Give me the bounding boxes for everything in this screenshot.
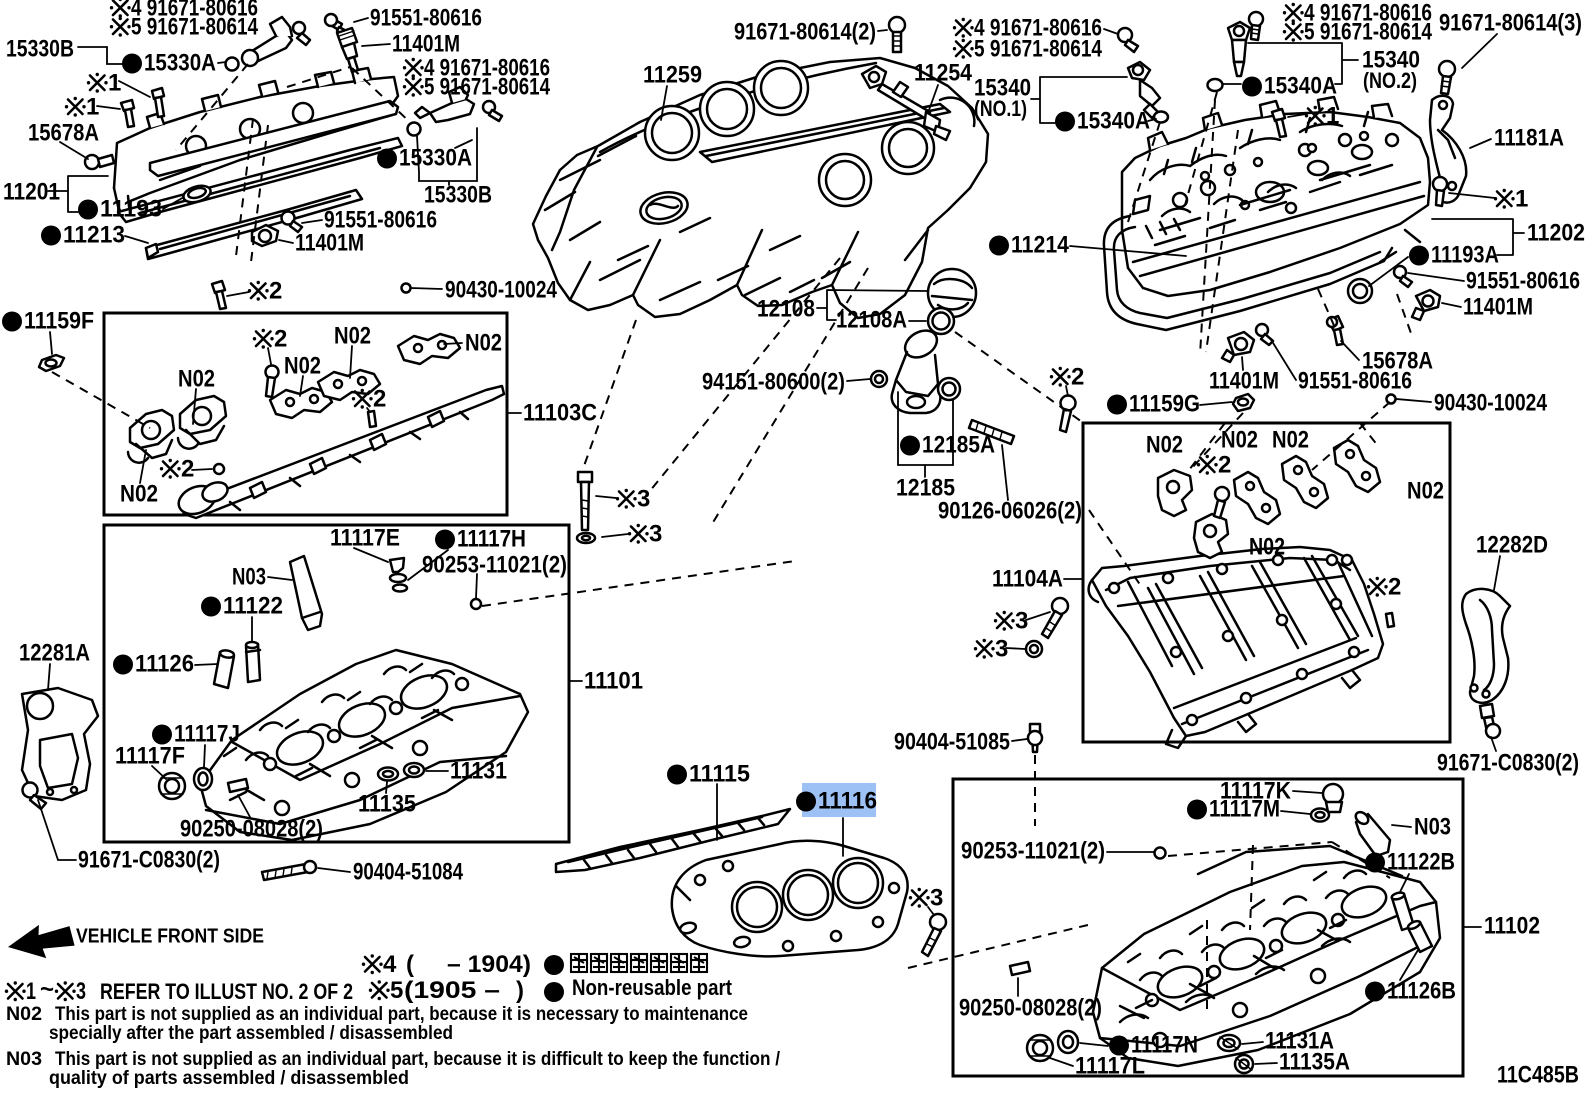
svg-text:N02: N02 xyxy=(120,481,158,508)
svg-text:5 91671-80614: 5 91671-80614 xyxy=(424,74,551,101)
svg-text:91551-80616: 91551-80616 xyxy=(1298,368,1412,395)
svg-text:91551-80616: 91551-80616 xyxy=(1466,268,1580,295)
svg-text:11122: 11122 xyxy=(223,593,283,620)
svg-text:2: 2 xyxy=(274,326,287,353)
svg-text:3: 3 xyxy=(76,978,86,1005)
svg-text:(: ( xyxy=(406,951,414,978)
svg-text:11116: 11116 xyxy=(818,788,877,815)
svg-text:This part is not supplied as a: This part is not supplied as an individu… xyxy=(55,1049,781,1070)
svg-text:3: 3 xyxy=(1015,608,1028,635)
svg-text:N02: N02 xyxy=(465,330,502,357)
svg-text:quality of parts assembled /: quality of parts assembled / disassemble… xyxy=(49,1068,409,1089)
svg-text:N03: N03 xyxy=(1414,814,1451,841)
svg-text:1: 1 xyxy=(1326,103,1339,130)
svg-text:3: 3 xyxy=(930,885,943,912)
svg-text:N02: N02 xyxy=(1249,534,1285,561)
svg-text:11117H: 11117H xyxy=(457,526,526,553)
svg-text:11401M: 11401M xyxy=(1209,368,1279,395)
svg-text:15330A: 15330A xyxy=(144,50,216,77)
svg-text:1: 1 xyxy=(108,70,121,97)
svg-text:91671-80614(2): 91671-80614(2) xyxy=(734,19,876,46)
svg-text:91671-C0830(2): 91671-C0830(2) xyxy=(78,847,220,874)
svg-text:11401M: 11401M xyxy=(392,31,460,58)
svg-text:2: 2 xyxy=(269,278,282,305)
svg-text:2: 2 xyxy=(373,386,386,413)
svg-text:2: 2 xyxy=(1218,452,1231,479)
svg-text:12281A: 12281A xyxy=(19,640,90,667)
svg-text:2: 2 xyxy=(1071,364,1084,391)
svg-text:11159F: 11159F xyxy=(24,308,94,335)
svg-text:11193: 11193 xyxy=(100,196,162,223)
svg-text:N02: N02 xyxy=(284,353,321,380)
svg-text:N02: N02 xyxy=(1407,478,1444,505)
svg-text:90250-08028(2): 90250-08028(2) xyxy=(959,995,1102,1022)
svg-text:(NO.2): (NO.2) xyxy=(1363,68,1417,93)
svg-text:11122B: 11122B xyxy=(1387,849,1455,876)
svg-text:11214: 11214 xyxy=(1011,232,1070,259)
svg-text:11135A: 11135A xyxy=(1279,1049,1350,1076)
svg-text:– 1904): – 1904) xyxy=(447,951,531,978)
svg-text:11401M: 11401M xyxy=(1463,294,1533,321)
svg-text:90253-11021(2): 90253-11021(2) xyxy=(422,552,567,579)
svg-text:N02: N02 xyxy=(1272,427,1309,454)
svg-text:VEHICLE FRONT SIDE: VEHICLE FRONT SIDE xyxy=(76,926,264,948)
svg-text:11201: 11201 xyxy=(3,179,60,206)
svg-text:5: 5 xyxy=(390,977,403,1004)
svg-text:11259: 11259 xyxy=(643,62,702,89)
svg-text:15678A: 15678A xyxy=(28,120,99,147)
svg-text:11254: 11254 xyxy=(914,60,973,87)
svg-text:3: 3 xyxy=(649,521,662,548)
svg-text:): ) xyxy=(516,977,524,1004)
svg-text:90404-51085: 90404-51085 xyxy=(894,729,1010,756)
svg-text:specially after the part assem: specially after the part assembled / dis… xyxy=(49,1023,453,1044)
svg-text:1: 1 xyxy=(1515,186,1528,213)
svg-text:Non-reusable part: Non-reusable part xyxy=(572,975,733,1000)
svg-text:(1905 –: (1905 – xyxy=(404,977,500,1004)
svg-text:N02: N02 xyxy=(178,366,215,393)
svg-text:N02: N02 xyxy=(334,323,371,350)
svg-text:~: ~ xyxy=(40,976,54,1003)
svg-text:N03: N03 xyxy=(6,1049,42,1070)
svg-text:2: 2 xyxy=(1388,574,1401,601)
svg-text:11115: 11115 xyxy=(689,761,750,788)
svg-text:11117E: 11117E xyxy=(330,525,400,552)
svg-text:91551-80616: 91551-80616 xyxy=(370,5,482,32)
svg-text:90430-10024: 90430-10024 xyxy=(1434,390,1548,417)
svg-text:12185A: 12185A xyxy=(922,432,995,459)
svg-text:1: 1 xyxy=(26,978,36,1005)
svg-text:90126-06026(2): 90126-06026(2) xyxy=(938,498,1082,525)
svg-text:3: 3 xyxy=(637,486,650,513)
svg-text:12108A: 12108A xyxy=(836,307,907,334)
svg-text:2: 2 xyxy=(181,456,194,483)
svg-text:12108: 12108 xyxy=(757,296,815,323)
svg-text:5 91671-80614: 5 91671-80614 xyxy=(131,14,259,41)
svg-text:11117M: 11117M xyxy=(1209,796,1280,823)
svg-text:90253-11021(2): 90253-11021(2) xyxy=(961,838,1105,865)
svg-text:15330B: 15330B xyxy=(6,36,74,63)
svg-text:11101: 11101 xyxy=(584,668,643,695)
svg-text:91671-C0830(2): 91671-C0830(2) xyxy=(1437,750,1579,777)
svg-text:90404-51084: 90404-51084 xyxy=(353,859,464,886)
svg-text:11181A: 11181A xyxy=(1494,125,1564,152)
svg-text:5 91671-80614: 5 91671-80614 xyxy=(974,36,1103,63)
svg-text:1: 1 xyxy=(86,94,99,121)
svg-text:11126B: 11126B xyxy=(1387,978,1456,1005)
svg-text:15330A: 15330A xyxy=(399,145,472,172)
svg-text:11104A: 11104A xyxy=(992,566,1063,593)
svg-text:4: 4 xyxy=(383,951,397,978)
svg-text:15330B: 15330B xyxy=(424,182,492,209)
svg-text:91671-80614(3): 91671-80614(3) xyxy=(1439,10,1582,37)
svg-text:3: 3 xyxy=(995,636,1008,663)
svg-text:15340A: 15340A xyxy=(1264,73,1337,100)
svg-text:11193A: 11193A xyxy=(1431,242,1499,269)
svg-text:11102: 11102 xyxy=(1484,913,1540,940)
svg-text:12282D: 12282D xyxy=(1476,532,1548,559)
svg-text:(NO.1): (NO.1) xyxy=(974,96,1027,121)
svg-text:N02: N02 xyxy=(1221,427,1258,454)
svg-text:11401M: 11401M xyxy=(295,230,364,257)
svg-text:11117F: 11117F xyxy=(115,743,185,770)
svg-text:11202: 11202 xyxy=(1527,220,1585,247)
svg-text:11103C: 11103C xyxy=(523,400,597,427)
svg-text:11135: 11135 xyxy=(358,791,416,818)
svg-text:11213: 11213 xyxy=(63,222,125,249)
svg-text:90430-10024: 90430-10024 xyxy=(445,277,558,304)
svg-text:11126: 11126 xyxy=(135,651,194,678)
svg-text:N02: N02 xyxy=(6,1004,42,1025)
svg-text:11131: 11131 xyxy=(450,758,507,785)
svg-text:REFER TO ILLUST NO. 2 OF 2: REFER TO ILLUST NO. 2 OF 2 xyxy=(100,979,353,1004)
svg-text:90250-08028(2): 90250-08028(2) xyxy=(180,816,323,843)
svg-text:11C485B: 11C485B xyxy=(1497,1062,1579,1089)
svg-text:This part is not supplied as a: This part is not supplied as an individu… xyxy=(55,1004,748,1025)
svg-text:11159G: 11159G xyxy=(1129,391,1200,418)
svg-text:N02: N02 xyxy=(1146,432,1183,459)
svg-text:15340A: 15340A xyxy=(1077,108,1150,135)
svg-text:5 91671-80614: 5 91671-80614 xyxy=(1304,19,1433,46)
svg-text:11117L: 11117L xyxy=(1075,1053,1145,1080)
svg-text:94151-80600(2): 94151-80600(2) xyxy=(702,369,845,396)
svg-text:N03: N03 xyxy=(232,564,266,591)
